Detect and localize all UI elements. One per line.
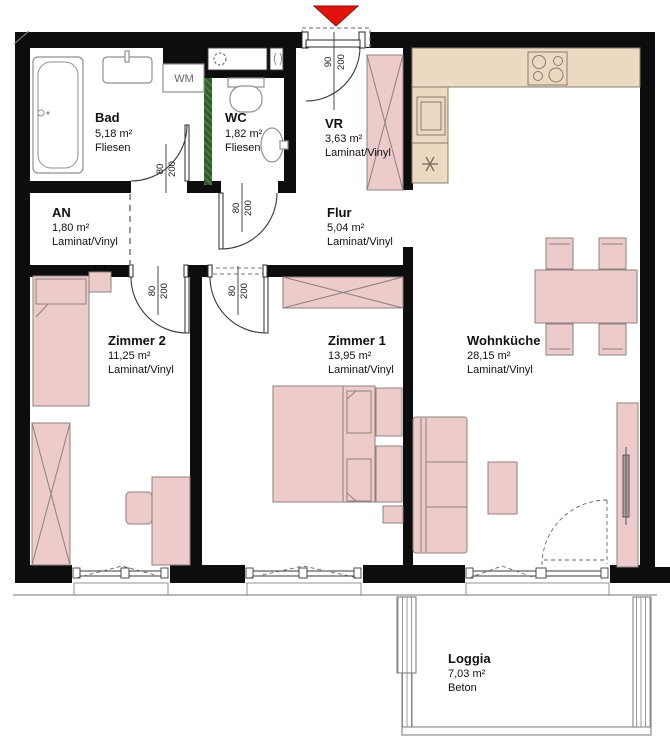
window-wohnkueche [466, 500, 608, 578]
svg-text:200: 200 [239, 283, 250, 299]
floor-plan: WM [0, 0, 670, 749]
svg-text:Laminat/Vinyl: Laminat/Vinyl [328, 364, 394, 376]
svg-text:Flur: Flur [327, 205, 352, 220]
installation-shaft [204, 78, 212, 185]
vent-shaft [208, 48, 283, 70]
svg-text:AN: AN [52, 205, 71, 220]
svg-text:Loggia: Loggia [448, 651, 491, 666]
door-dimension-label: 80 200 [147, 266, 170, 315]
door-dimension-label: 80 200 [155, 144, 178, 193]
zimmer2-furniture [32, 272, 190, 565]
svg-text:80: 80 [227, 286, 238, 297]
svg-text:VR: VR [325, 116, 344, 131]
nightstand [376, 446, 402, 502]
room-label-wc: WC 1,82 m² Fliesen [225, 110, 263, 154]
svg-text:Fliesen: Fliesen [225, 142, 260, 154]
dining-chair [599, 324, 626, 355]
wohnkueche-furniture [413, 238, 638, 567]
dining-chair [546, 238, 573, 269]
pillow [347, 459, 371, 501]
bathtub-drain-icon [47, 112, 50, 115]
svg-text:80: 80 [231, 203, 242, 214]
desk-chair [126, 492, 152, 524]
dining-table [535, 270, 637, 323]
svg-text:Laminat/Vinyl: Laminat/Vinyl [327, 236, 393, 248]
svg-text:200: 200 [243, 200, 254, 216]
neighbour-wall-stub [655, 567, 670, 583]
zimmer1-door: 80 200 [208, 265, 268, 333]
zimmer1-furniture [273, 277, 403, 523]
loggia-wall-left-pier [397, 597, 416, 673]
room-label-zimmer2: Zimmer 2 11,25 m² Laminat/Vinyl [108, 333, 174, 376]
wardrobe-zimmer1 [283, 277, 403, 308]
svg-text:90: 90 [323, 57, 334, 68]
loggia-wall-left [402, 673, 412, 733]
tv-board [617, 403, 638, 567]
room-label-flur: Flur 5,04 m² Laminat/Vinyl [327, 205, 393, 248]
svg-text:28,15 m²: 28,15 m² [467, 350, 511, 362]
kitchen-counter [412, 48, 640, 183]
svg-text:11,25 m²: 11,25 m² [108, 350, 151, 362]
svg-text:7,03 m²: 7,03 m² [448, 668, 486, 680]
window-zimmer1 [246, 566, 361, 578]
svg-text:Beton: Beton [448, 682, 477, 694]
wc-sink-tap-icon [280, 141, 288, 149]
wardrobe-zimmer2 [32, 423, 70, 565]
svg-text:Bad: Bad [95, 110, 120, 125]
wardrobe-vr [367, 55, 403, 190]
balcony-door [542, 500, 607, 565]
svg-text:Zimmer 2: Zimmer 2 [108, 333, 166, 348]
svg-text:200: 200 [167, 161, 178, 177]
washing-machine-label: WM [174, 73, 194, 85]
svg-text:3,63 m²: 3,63 m² [325, 133, 363, 145]
svg-text:1,80 m²: 1,80 m² [52, 222, 90, 234]
svg-text:WC: WC [225, 110, 247, 125]
svg-text:Laminat/Vinyl: Laminat/Vinyl [325, 147, 391, 159]
svg-text:Wohnküche: Wohnküche [467, 333, 540, 348]
room-label-zimmer1: Zimmer 1 13,95 m² Laminat/Vinyl [328, 333, 394, 376]
svg-text:1,82 m²: 1,82 m² [225, 128, 263, 140]
svg-text:Fliesen: Fliesen [95, 142, 130, 154]
dining-chair [599, 238, 626, 269]
entry-door: 90 200 [302, 6, 370, 110]
wc-door: 80 200 [219, 183, 277, 249]
nightstand [89, 272, 111, 292]
toilet [230, 86, 262, 112]
window-sills [13, 583, 657, 595]
pillow [347, 391, 371, 433]
entry-arrow-icon [314, 6, 358, 26]
svg-text:Laminat/Vinyl: Laminat/Vinyl [108, 364, 174, 376]
room-label-loggia: Loggia 7,03 m² Beton [448, 651, 491, 694]
pillow [36, 279, 86, 304]
sofa [413, 417, 467, 553]
svg-text:200: 200 [159, 283, 170, 299]
loggia [397, 597, 651, 735]
dining-chair [546, 324, 573, 355]
coffee-table [488, 462, 517, 514]
svg-text:13,95 m²: 13,95 m² [328, 350, 372, 362]
svg-text:Laminat/Vinyl: Laminat/Vinyl [467, 364, 533, 376]
nightstand [376, 388, 402, 436]
loggia-wall-right [633, 597, 651, 733]
svg-text:Zimmer 1: Zimmer 1 [328, 333, 386, 348]
zimmer2-door: 80 200 [129, 265, 189, 333]
svg-text:80: 80 [155, 164, 166, 175]
svg-text:5,18 m²: 5,18 m² [95, 128, 133, 140]
door-dimension-label: 80 200 [231, 183, 254, 232]
svg-text:Laminat/Vinyl: Laminat/Vinyl [52, 236, 118, 248]
svg-text:80: 80 [147, 286, 158, 297]
desk [152, 477, 190, 565]
room-label-an: AN 1,80 m² Laminat/Vinyl [52, 205, 118, 248]
bathtub [33, 57, 83, 173]
bad-door: 80 200 [131, 125, 189, 193]
svg-text:5,04 m²: 5,04 m² [327, 222, 365, 234]
loggia-wall-bottom [402, 727, 651, 735]
washbasin-tap-icon [125, 51, 129, 62]
window-zimmer2 [73, 566, 168, 578]
stool [383, 506, 403, 523]
room-label-bad: Bad 5,18 m² Fliesen [95, 110, 133, 154]
svg-text:200: 200 [336, 54, 347, 70]
room-label-wohnkueche: Wohnküche 28,15 m² Laminat/Vinyl [467, 333, 540, 376]
